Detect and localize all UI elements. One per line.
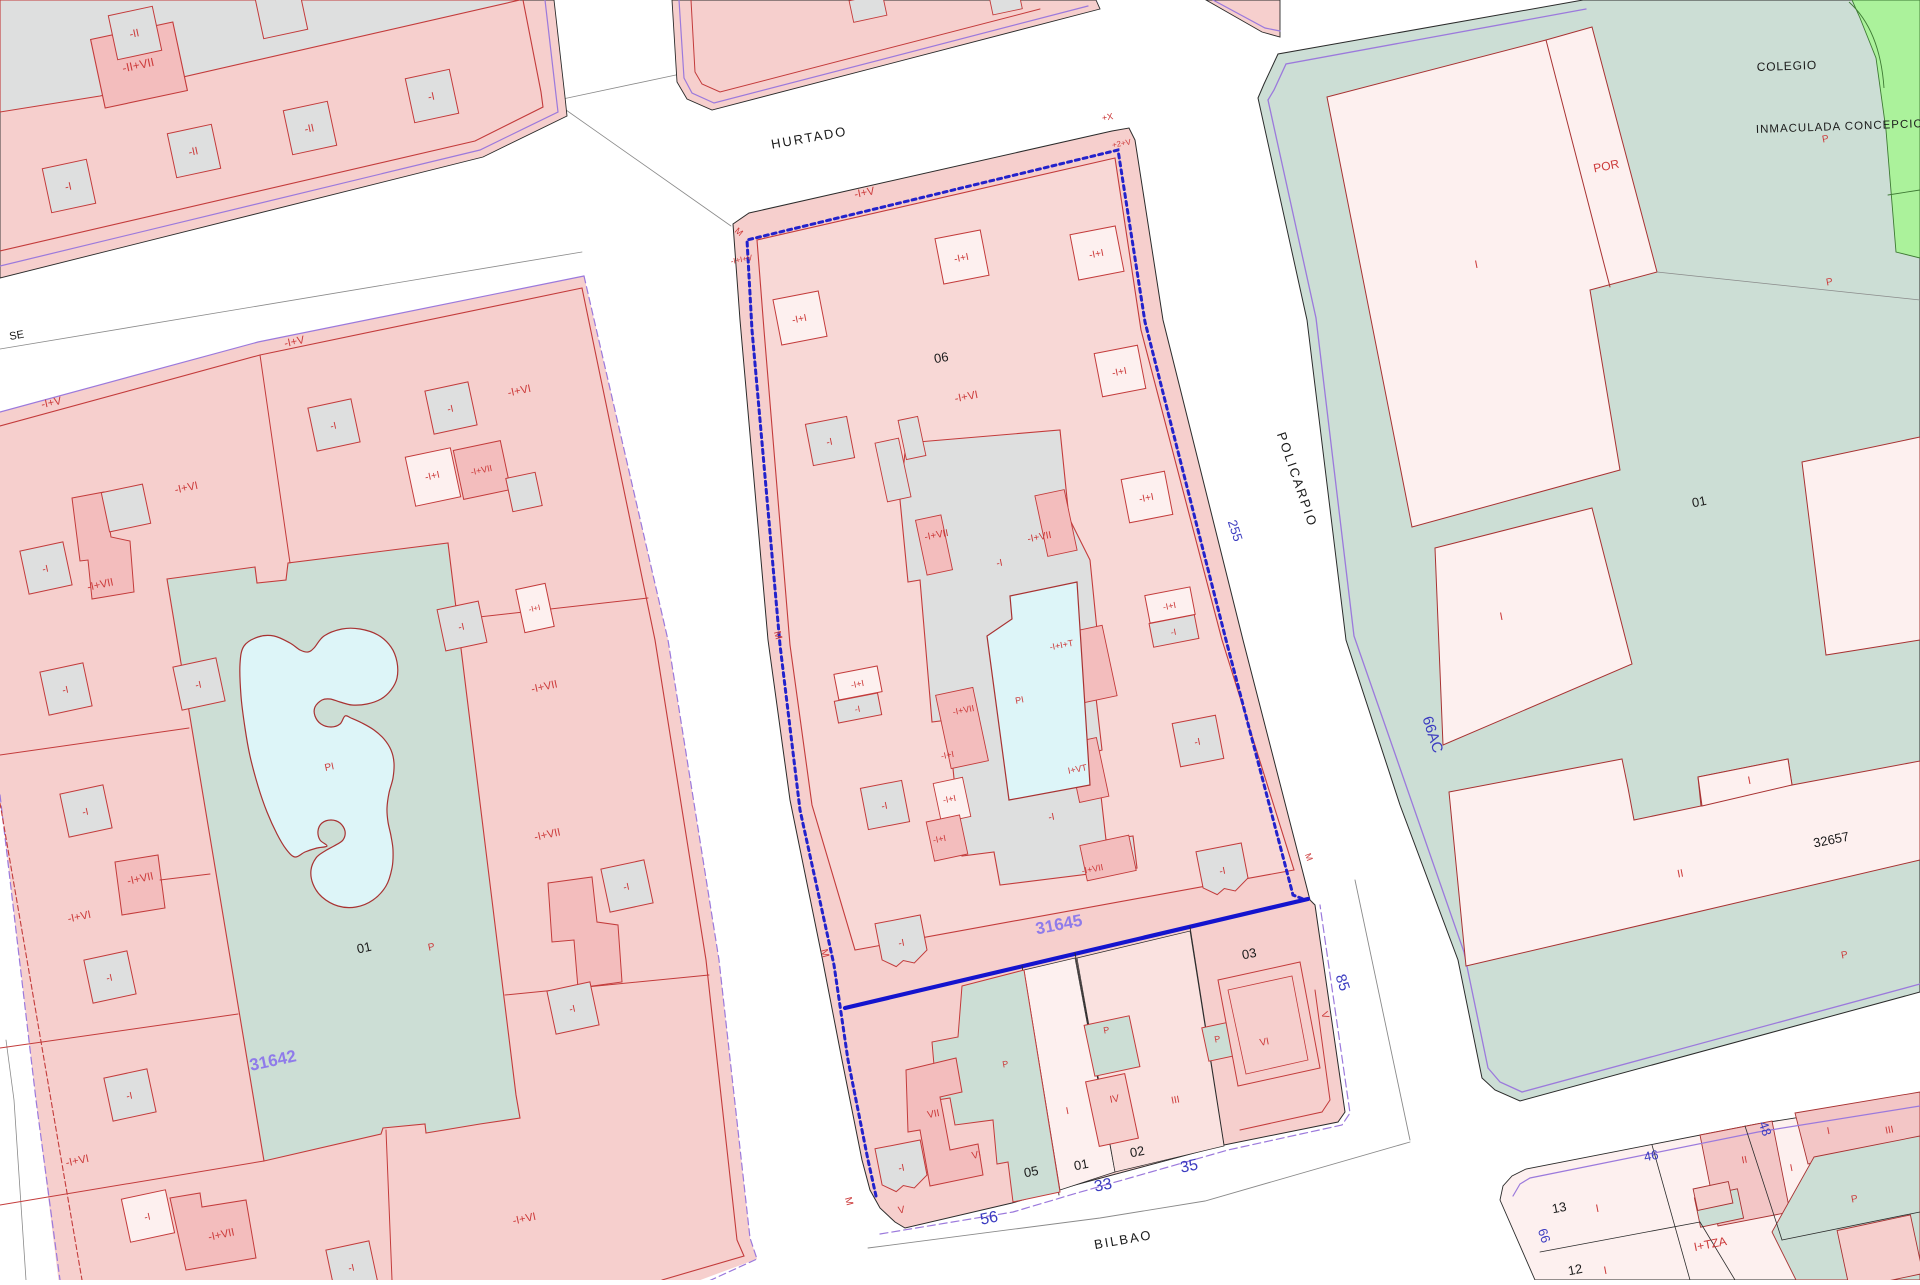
svg-text:12: 12: [1567, 1261, 1584, 1278]
svg-text:35: 35: [1179, 1157, 1200, 1177]
svg-text:46: 46: [1643, 1147, 1660, 1164]
svg-text:06: 06: [933, 349, 950, 366]
svg-text:SE: SE: [8, 329, 25, 343]
svg-text:05: 05: [1023, 1163, 1040, 1180]
svg-text:COLEGIO: COLEGIO: [1756, 58, 1817, 74]
svg-text:01: 01: [1691, 493, 1708, 510]
svg-text:13: 13: [1551, 1199, 1568, 1216]
svg-text:01: 01: [1073, 1156, 1090, 1173]
svg-text:VII: VII: [926, 1108, 940, 1121]
svg-text:56: 56: [979, 1209, 1000, 1229]
svg-text:01: 01: [355, 939, 372, 957]
svg-text:02: 02: [1129, 1143, 1146, 1160]
svg-text:33: 33: [1093, 1176, 1114, 1196]
svg-text:03: 03: [1241, 945, 1258, 962]
svg-text:+X: +X: [1101, 111, 1114, 123]
